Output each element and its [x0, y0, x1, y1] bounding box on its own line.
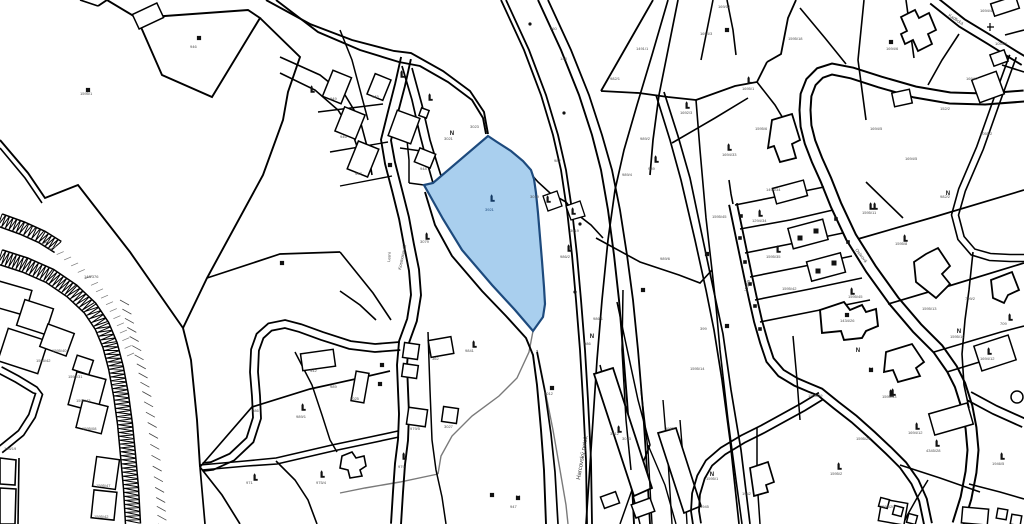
svg-text:N: N: [856, 348, 860, 354]
svg-text:1694/3: 1694/3: [700, 31, 713, 36]
svg-text:949: 949: [330, 96, 337, 101]
svg-text:1595/13: 1595/13: [922, 306, 937, 311]
svg-text:4345/28: 4345/28: [926, 448, 941, 453]
svg-text:3013: 3013: [622, 436, 632, 441]
svg-text:1595/42: 1595/42: [782, 286, 797, 291]
svg-text:3025: 3025: [350, 396, 360, 401]
svg-text:1595/45: 1595/45: [712, 214, 727, 219]
svg-text:946: 946: [190, 44, 197, 49]
svg-text:1695/1: 1695/1: [742, 86, 755, 91]
svg-text:989/6: 989/6: [660, 256, 671, 261]
svg-text:152/2: 152/2: [940, 106, 951, 111]
svg-text:1595/42: 1595/42: [94, 514, 109, 519]
svg-text:979: 979: [398, 464, 405, 469]
svg-text:148/376: 148/376: [84, 274, 99, 279]
svg-text:989: 989: [330, 384, 337, 389]
svg-text:1694/6: 1694/6: [886, 46, 899, 51]
svg-text:Lesní: Lesní: [386, 251, 392, 262]
svg-text:3019: 3019: [570, 228, 580, 233]
svg-text:1055/2: 1055/2: [980, 131, 993, 136]
svg-text:148/19: 148/19: [4, 446, 17, 451]
svg-text:1595/23: 1595/23: [856, 436, 871, 441]
svg-text:169/12: 169/12: [718, 4, 731, 9]
svg-text:1294/34: 1294/34: [752, 218, 767, 223]
svg-text:947: 947: [510, 504, 517, 509]
svg-text:3921: 3921: [485, 207, 495, 212]
svg-text:1595/29: 1595/29: [808, 393, 823, 398]
svg-text:971: 971: [246, 480, 253, 485]
svg-text:9841: 9841: [465, 348, 475, 353]
svg-text:399: 399: [700, 326, 707, 331]
svg-text:1694/12: 1694/12: [908, 430, 923, 435]
svg-text:709/2: 709/2: [965, 296, 976, 301]
svg-text:1595/08: 1595/08: [82, 426, 97, 431]
svg-text:1694/7: 1694/7: [966, 76, 979, 81]
svg-text:709: 709: [1000, 321, 1007, 326]
svg-text:945: 945: [372, 94, 379, 99]
svg-text:3023: 3023: [470, 124, 480, 129]
svg-text:986/1: 986/1: [593, 316, 604, 321]
svg-text:3079: 3079: [420, 239, 430, 244]
svg-text:362: 362: [432, 356, 439, 361]
svg-text:1595/1: 1595/1: [80, 91, 93, 96]
svg-text:3027: 3027: [444, 424, 454, 429]
svg-text:1595/14: 1595/14: [690, 366, 705, 371]
svg-text:1595/47: 1595/47: [96, 483, 111, 488]
svg-text:3021: 3021: [444, 136, 454, 141]
svg-text:1595/2: 1595/2: [830, 471, 843, 476]
svg-text:1494/34: 1494/34: [766, 187, 781, 192]
svg-text:148: 148: [560, 56, 567, 61]
svg-text:1595/33: 1595/33: [882, 394, 897, 399]
svg-text:948: 948: [420, 166, 427, 171]
svg-text:1694/33: 1694/33: [722, 152, 737, 157]
svg-text:1692/3: 1692/3: [680, 110, 693, 115]
svg-text:1694/5: 1694/5: [905, 156, 918, 161]
svg-text:1942: 1942: [742, 491, 752, 496]
svg-text:975/4: 975/4: [316, 480, 327, 485]
svg-text:989: 989: [648, 166, 655, 171]
svg-text:3012: 3012: [610, 431, 620, 436]
svg-text:1595/42: 1595/42: [36, 358, 51, 363]
svg-text:1595/18: 1595/18: [788, 36, 803, 41]
svg-text:1694/5: 1694/5: [870, 126, 883, 131]
svg-text:3012: 3012: [544, 391, 554, 396]
svg-text:947: 947: [355, 171, 362, 176]
svg-text:942: 942: [310, 368, 317, 373]
svg-text:1595/10: 1595/10: [950, 334, 965, 339]
svg-text:989/2: 989/2: [640, 136, 651, 141]
svg-text:1595/6: 1595/6: [755, 126, 768, 131]
svg-text:982: 982: [554, 158, 561, 163]
svg-text:N: N: [590, 334, 594, 340]
svg-text:3019: 3019: [530, 194, 540, 199]
svg-text:979/5: 979/5: [410, 426, 421, 431]
svg-text:1595/1: 1595/1: [706, 476, 719, 481]
svg-text:1694/4: 1694/4: [980, 8, 993, 13]
svg-text:1595/20: 1595/20: [880, 504, 895, 509]
svg-text:946: 946: [340, 134, 347, 139]
svg-text:1595/8: 1595/8: [895, 241, 908, 246]
svg-text:1595/43: 1595/43: [76, 398, 91, 403]
svg-text:989/1: 989/1: [296, 414, 307, 419]
svg-text:986: 986: [584, 341, 591, 346]
svg-text:360: 360: [550, 26, 557, 31]
svg-text:982/2: 982/2: [940, 194, 951, 199]
svg-text:1595/31: 1595/31: [68, 374, 83, 379]
svg-text:1946/5: 1946/5: [992, 461, 1005, 466]
svg-text:986: 986: [252, 408, 259, 413]
svg-text:1945: 1945: [700, 504, 710, 509]
svg-text:989/4: 989/4: [622, 172, 633, 177]
svg-text:1434/26: 1434/26: [840, 318, 855, 323]
svg-text:1595/11: 1595/11: [862, 210, 877, 215]
svg-text:1595/40: 1595/40: [52, 348, 67, 353]
svg-text:982/1: 982/1: [610, 76, 621, 81]
svg-text:1491/1: 1491/1: [636, 46, 649, 51]
svg-text:1055/1: 1055/1: [995, 41, 1008, 46]
svg-text:3983: 3983: [665, 426, 675, 431]
svg-text:1694/12: 1694/12: [980, 356, 995, 361]
svg-text:1595/45: 1595/45: [848, 294, 863, 299]
svg-text:1595/35: 1595/35: [766, 254, 781, 259]
svg-text:986/2: 986/2: [560, 254, 571, 259]
